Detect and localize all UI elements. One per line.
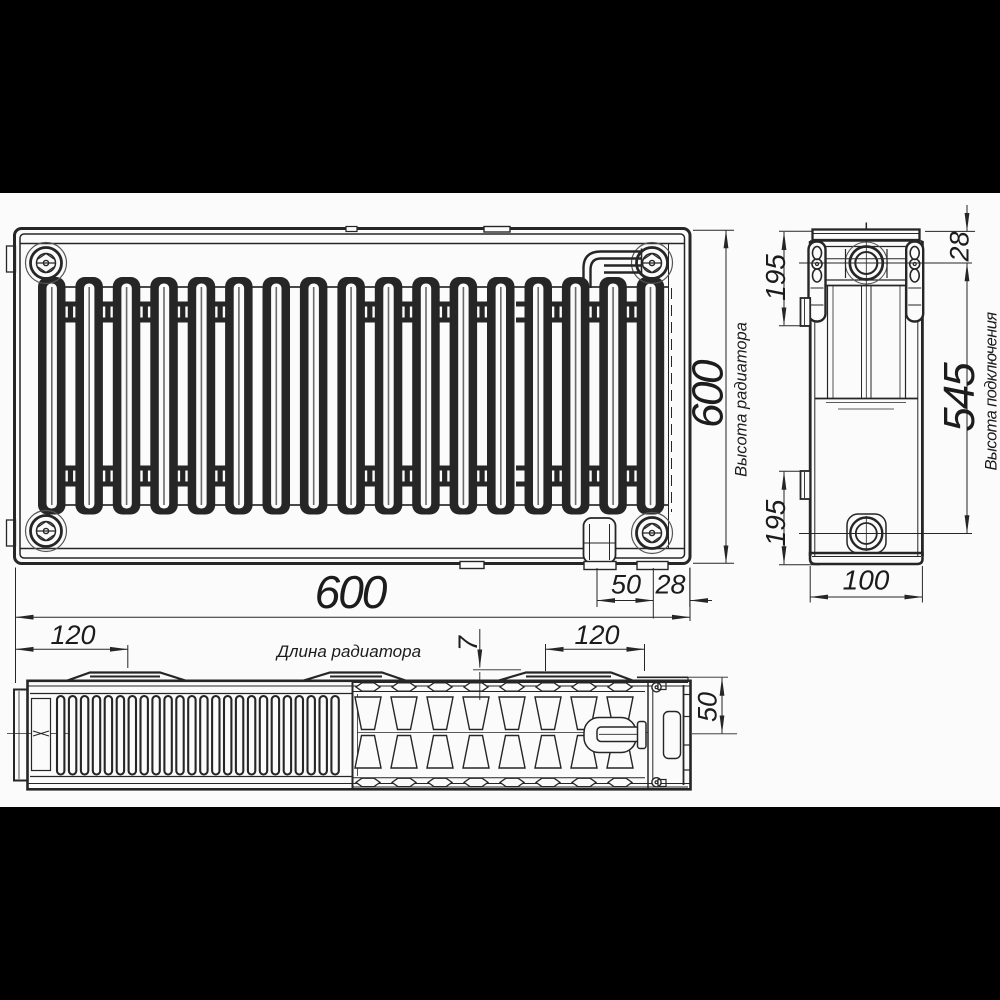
- svg-text:Высота радиатора: Высота радиатора: [733, 322, 751, 477]
- svg-text:120: 120: [50, 620, 95, 650]
- svg-text:50: 50: [693, 692, 723, 722]
- svg-text:7: 7: [453, 635, 483, 651]
- svg-text:600: 600: [684, 359, 733, 428]
- svg-text:195: 195: [760, 499, 791, 546]
- svg-text:195: 195: [760, 254, 791, 301]
- svg-text:28: 28: [945, 231, 975, 262]
- svg-text:120: 120: [574, 620, 619, 650]
- svg-text:Высота подключения: Высота подключения: [983, 312, 1000, 471]
- svg-text:100: 100: [843, 565, 890, 596]
- svg-text:50: 50: [611, 570, 641, 600]
- svg-text:545: 545: [935, 362, 984, 432]
- svg-text:28: 28: [654, 570, 685, 600]
- svg-text:600: 600: [315, 566, 388, 618]
- svg-text:Длина радиатора: Длина радиатора: [275, 642, 421, 661]
